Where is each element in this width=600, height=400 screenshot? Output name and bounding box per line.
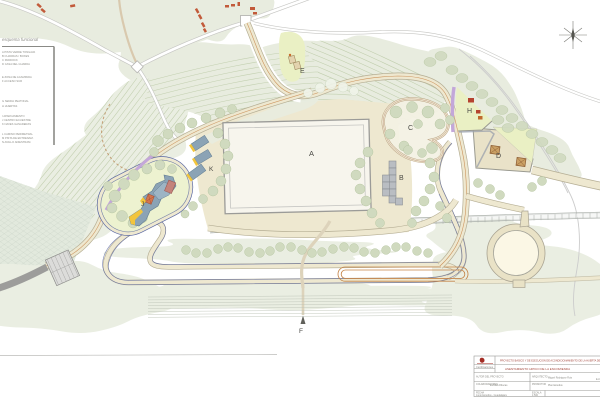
svg-text:esquema funcional: esquema funcional (2, 37, 39, 42)
svg-text:G SENDA PEATONAL: G SENDA PEATONAL (2, 99, 29, 103)
svg-text:AUTOR DEL PROYECTO: AUTOR DEL PROYECTO (476, 376, 504, 379)
svg-text:ASENTAMIENTO HIPICO DE LA ENCO: ASENTAMIENTO HIPICO DE LA ENCOMIENDA (505, 367, 570, 371)
svg-text:I APARCAMIENTO: I APARCAMIENTO (2, 114, 25, 118)
svg-text:J CENTRO ECUESTRE: J CENTRO ECUESTRE (2, 118, 31, 122)
svg-text:C: C (408, 125, 413, 132)
svg-text:PROYECTO BASICO Y DE EJECUCION: PROYECTO BASICO Y DE EJECUCION DE ACONDI… (500, 360, 600, 363)
svg-text:Junio Estudios - Guadalajara: Junio Estudios - Guadalajara (476, 394, 507, 397)
svg-text:Certificaciones: Certificaciones (476, 365, 494, 369)
svg-text:H: H (467, 108, 472, 115)
svg-text:Miguel Rodriguez Ruiz: Miguel Rodriguez Ruiz (548, 377, 573, 380)
svg-text:E ZONA DE ACAMPADA: E ZONA DE ACAMPADA (2, 75, 32, 79)
svg-text:F: F (299, 328, 303, 335)
svg-text:1:500: 1:500 (532, 394, 539, 397)
svg-text:K NAVES GANADERAS: K NAVES GANADERAS (2, 122, 31, 126)
svg-text:N ANILLO ADIESTRAM.: N ANILLO ADIESTRAM. (2, 140, 31, 144)
svg-text:A: A (309, 149, 314, 158)
svg-text:D CASA DEL GUARDA: D CASA DEL GUARDA (2, 62, 30, 66)
svg-text:L CAMINO PERIMETRAL: L CAMINO PERIMETRAL (2, 132, 33, 136)
svg-text:Plan Estudios: Plan Estudios (548, 384, 563, 387)
svg-text:Escuela Riberas: Escuela Riberas (490, 384, 508, 387)
svg-text:PROMOTOR: PROMOTOR (532, 383, 546, 386)
svg-text:M PISTA DE ENTRENAM.: M PISTA DE ENTRENAM. (2, 136, 34, 140)
svg-text:E: E (300, 68, 305, 75)
svg-text:H HUERTAS: H HUERTAS (2, 104, 17, 108)
svg-text:J: J (141, 201, 144, 208)
svg-text:E-01: E-01 (596, 378, 600, 381)
svg-text:B CUADRAS / BOXES: B CUADRAS / BOXES (2, 54, 29, 58)
svg-text:B: B (399, 175, 404, 182)
svg-text:F ACCESO SUR: F ACCESO SUR (2, 79, 22, 83)
svg-text:K: K (209, 166, 214, 173)
svg-text:A PISTA VERDE TONGAVA: A PISTA VERDE TONGAVA (2, 50, 35, 54)
svg-text:C PADDOCK: C PADDOCK (2, 58, 18, 62)
svg-text:D: D (496, 153, 501, 160)
svg-text:ARQUITECTO: ARQUITECTO (532, 376, 548, 379)
